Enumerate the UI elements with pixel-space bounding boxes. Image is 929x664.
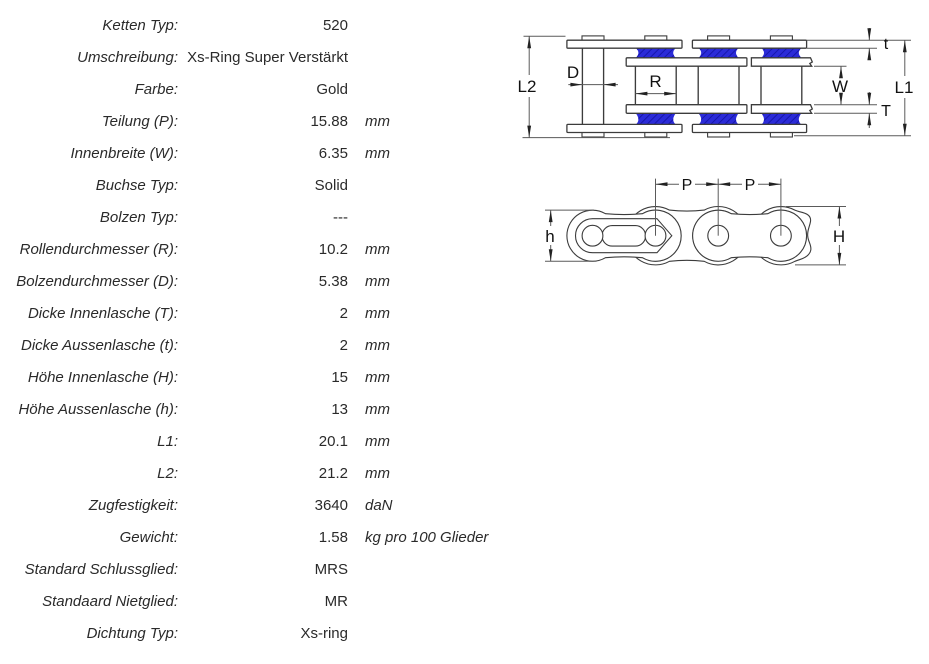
svg-text:W: W	[832, 77, 848, 96]
svg-text:R: R	[649, 72, 661, 91]
svg-text:P: P	[682, 177, 693, 194]
svg-text:h: h	[545, 227, 554, 246]
svg-text:H: H	[833, 227, 845, 246]
svg-text:T: T	[881, 103, 891, 120]
svg-text:D: D	[567, 63, 579, 82]
svg-text:L1: L1	[895, 78, 914, 97]
svg-text:L2: L2	[518, 77, 537, 96]
svg-text:t: t	[884, 36, 889, 53]
svg-text:P: P	[745, 177, 756, 194]
